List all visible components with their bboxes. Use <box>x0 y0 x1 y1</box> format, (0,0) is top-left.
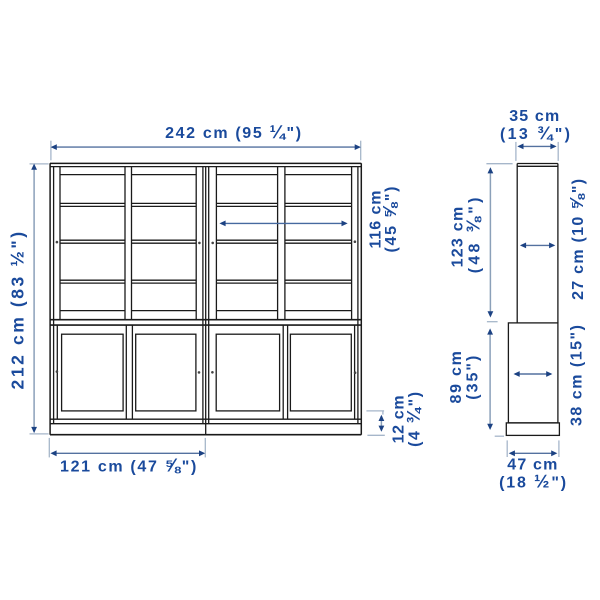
svg-text:116 cm: 116 cm <box>367 191 384 249</box>
svg-text:(4 ¾"): (4 ¾") <box>402 392 423 447</box>
svg-text:212 cm (83 ½"): 212 cm (83 ½") <box>7 232 28 390</box>
svg-text:121 cm (47 ⅝"): 121 cm (47 ⅝") <box>60 455 196 476</box>
svg-text:38 cm (15"): 38 cm (15") <box>569 325 586 426</box>
svg-text:242 cm (95 ¼"): 242 cm (95 ¼") <box>165 121 301 142</box>
svg-text:47 cm: 47 cm <box>507 457 557 474</box>
svg-text:27 cm (10 ⅝"): 27 cm (10 ⅝") <box>566 179 587 300</box>
